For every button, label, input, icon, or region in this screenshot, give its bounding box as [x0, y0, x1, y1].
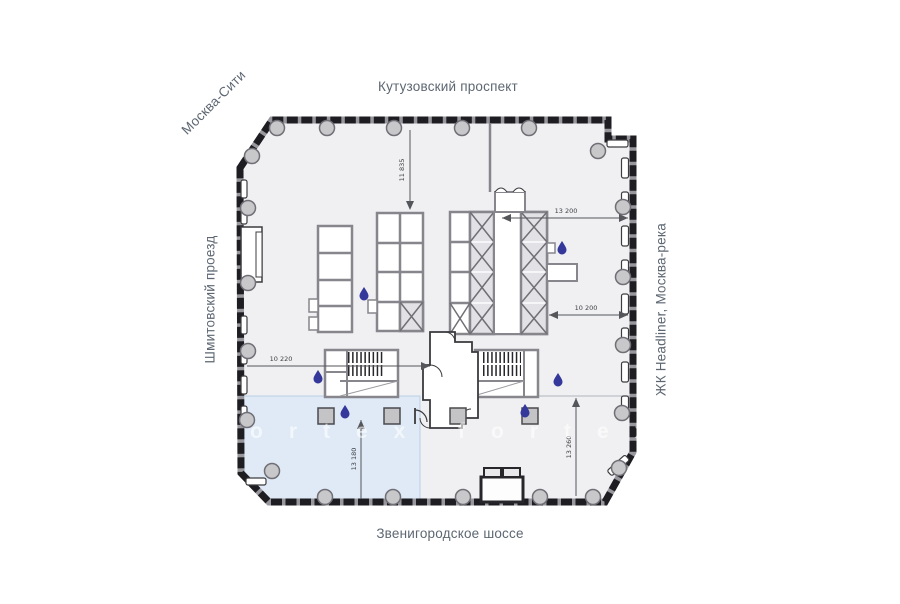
stairwell-left: [325, 350, 398, 397]
entrance-structure: [481, 468, 523, 502]
core-middle-block: [368, 213, 423, 331]
dim-right-upper: 13 200: [555, 207, 578, 215]
wall-shaft: [241, 227, 262, 282]
floor-plan: 11 835 13 200 10 200 10 220 13 180 13 26…: [0, 0, 900, 604]
dim-right-mid: 10 200: [575, 304, 598, 312]
stairwell-right: [475, 350, 538, 397]
dim-bottom-right-vertical: 13 260: [565, 436, 573, 459]
dim-bottom-left-vertical: 13 180: [350, 448, 358, 471]
dim-upper-vertical: 11 835: [398, 159, 406, 182]
dim-left-mid: 10 220: [270, 355, 293, 363]
